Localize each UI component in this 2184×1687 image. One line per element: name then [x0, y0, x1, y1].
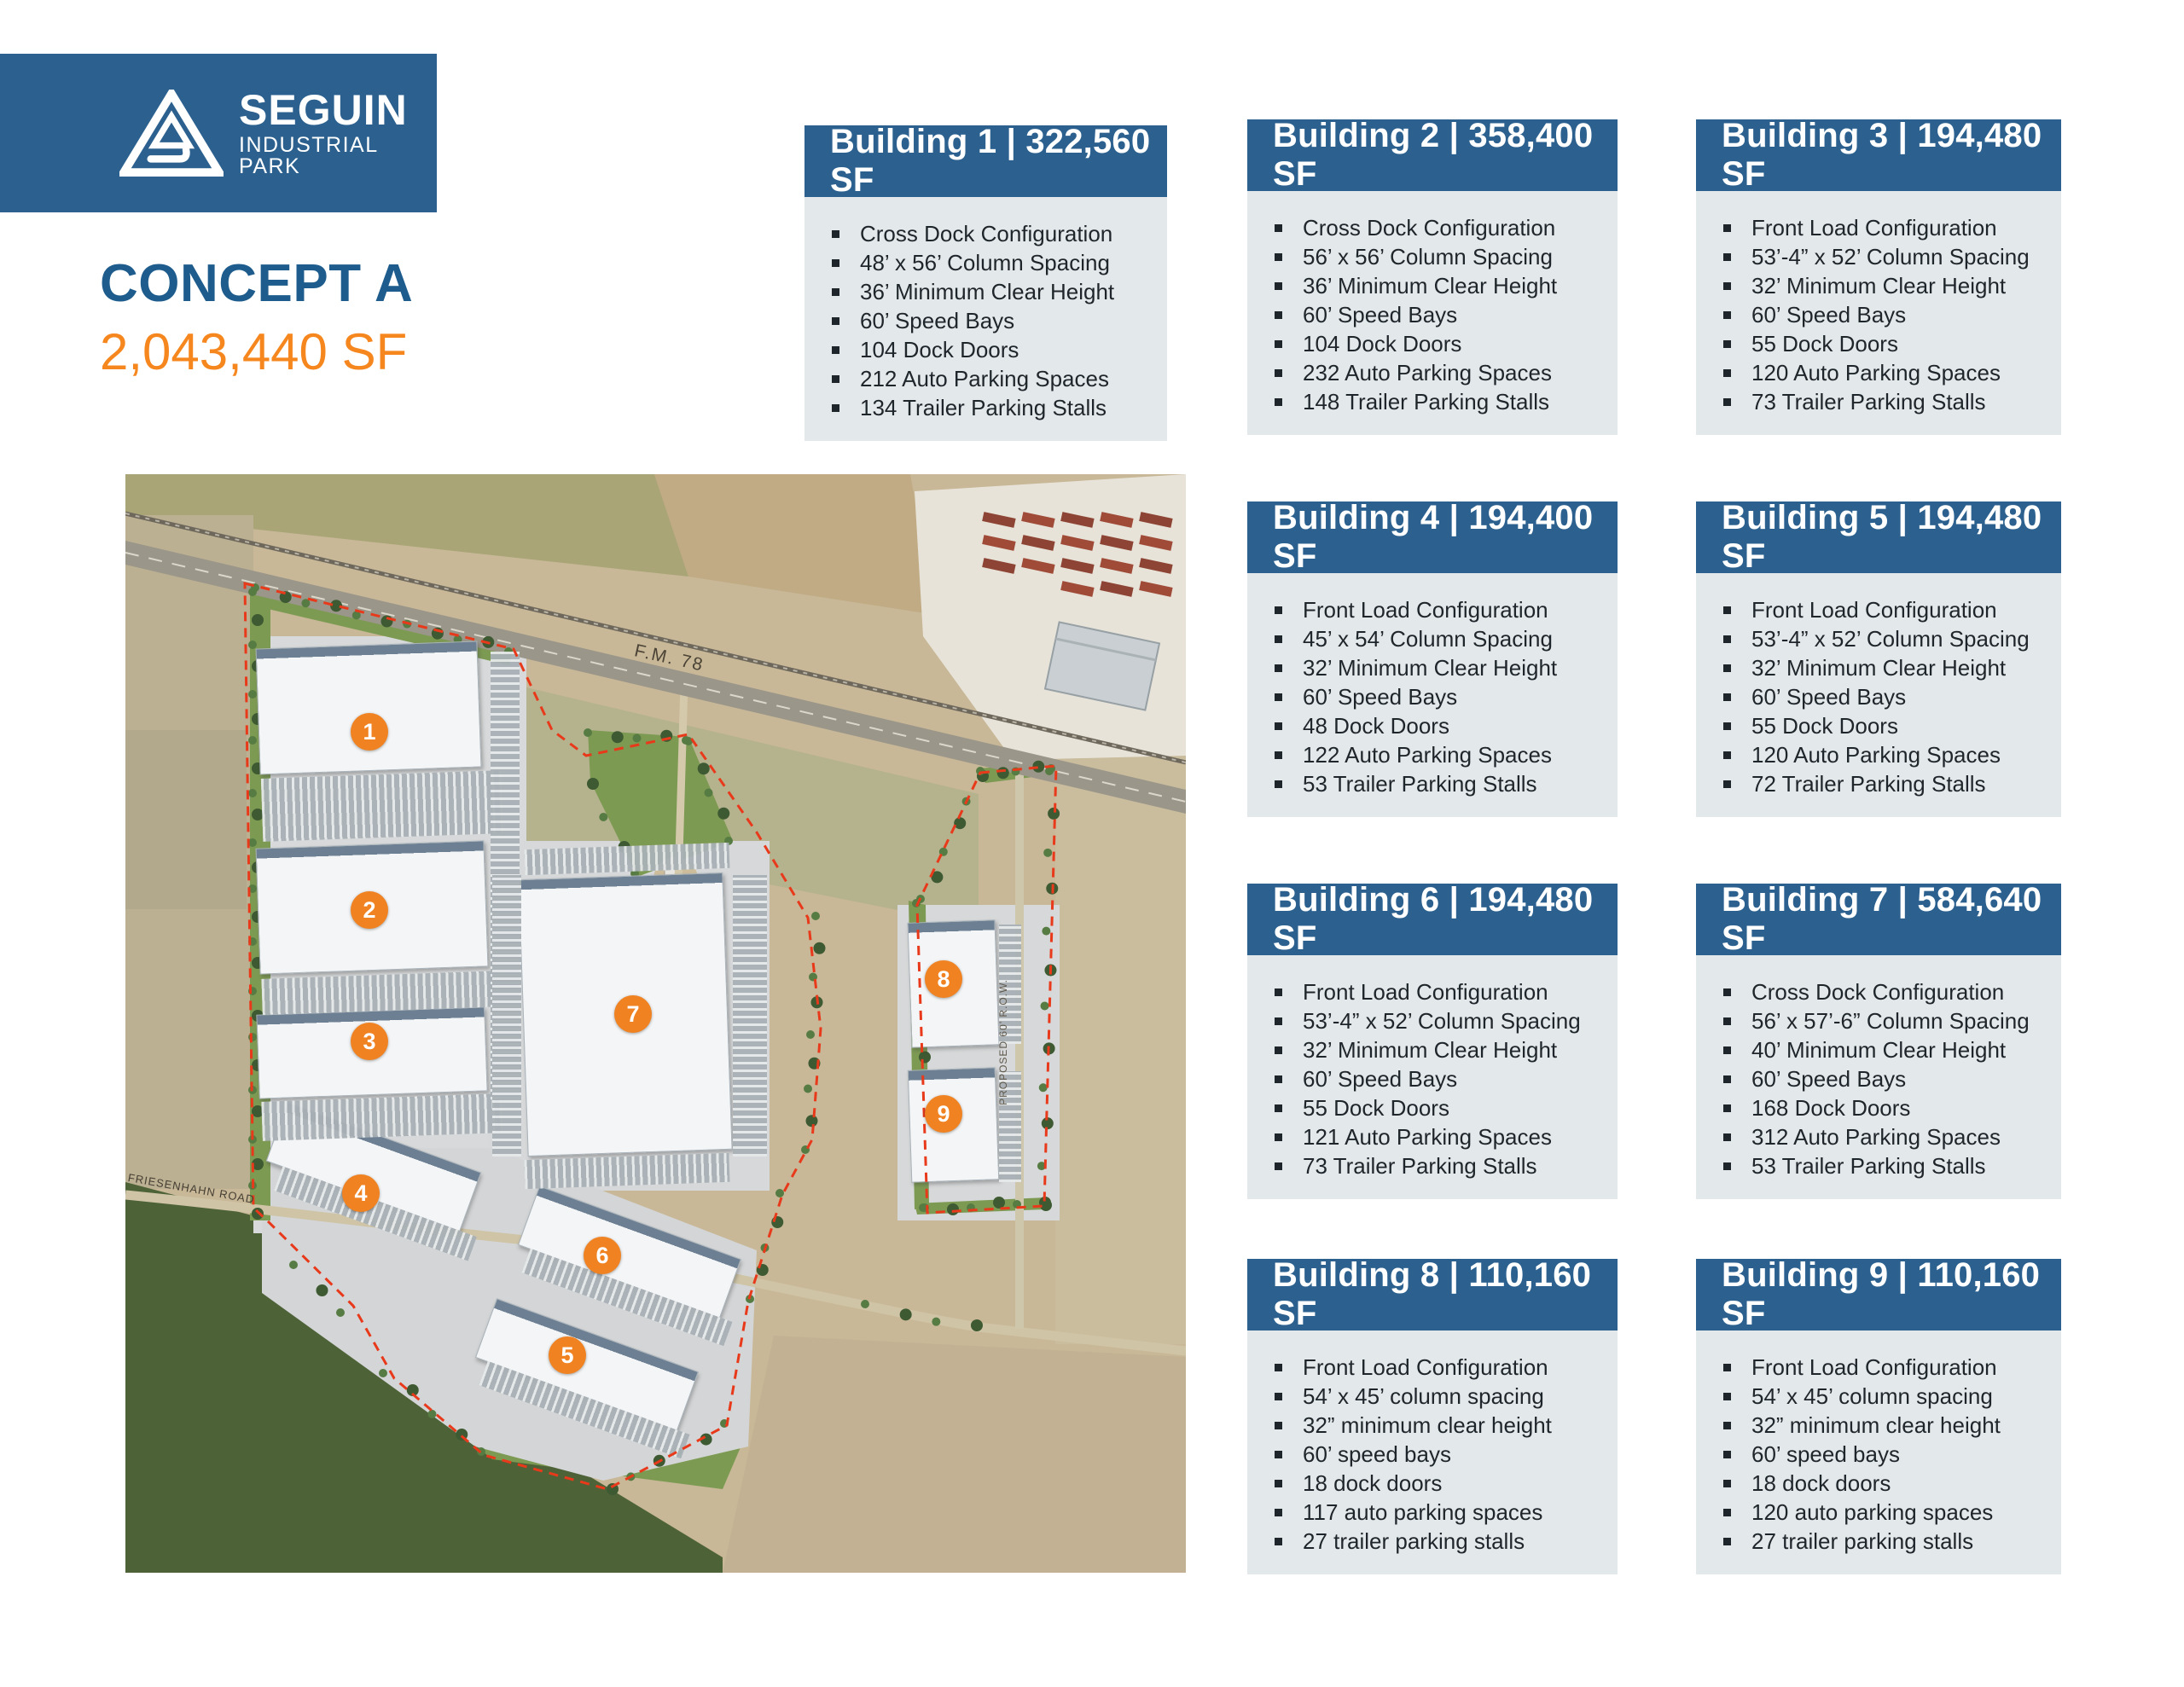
spec-text: Front Load Configuration — [1303, 977, 1548, 1006]
spec-bullet-item: 60’ Speed Bays — [1722, 1064, 2047, 1093]
spec-text: 60’ Speed Bays — [860, 306, 1014, 335]
spec-bullet-item: 55 Dock Doors — [1722, 329, 2047, 358]
site-plan-map: F.M. 78 FRIESENHAHN ROAD PROPOSED 60’ R.… — [125, 474, 1186, 1573]
card-header: Building 9 | 110,160 SF — [1696, 1259, 2061, 1330]
spec-text: 53 Trailer Parking Stalls — [1751, 1151, 1986, 1180]
page: SEGUIN INDUSTRIAL PARK CONCEPT A 2,043,4… — [0, 0, 2184, 1687]
spec-bullet-item: 56’ x 56’ Column Spacing — [1273, 242, 1604, 271]
spec-text: 122 Auto Parking Spaces — [1303, 740, 1552, 769]
spec-text: Cross Dock Configuration — [1303, 213, 1555, 242]
card-header: Building 7 | 584,640 SF — [1696, 884, 2061, 955]
spec-text: Cross Dock Configuration — [1751, 977, 2004, 1006]
bullet-square-icon — [1723, 1509, 1731, 1516]
spec-bullet-item: 32” minimum clear height — [1273, 1411, 1604, 1440]
bullet-square-icon — [1275, 664, 1282, 672]
bullet-square-icon — [1723, 693, 1731, 701]
bullet-square-icon — [1275, 988, 1282, 996]
spec-text: 212 Auto Parking Spaces — [860, 364, 1109, 393]
spec-bullet-item: Cross Dock Configuration — [830, 219, 1153, 248]
spec-bullet-item: 45’ x 54’ Column Spacing — [1273, 624, 1604, 653]
spec-text: 48 Dock Doors — [1303, 711, 1449, 740]
card-header: Building 4 | 194,400 SF — [1247, 501, 1618, 573]
bullet-square-icon — [1723, 253, 1731, 261]
spec-text: 60’ Speed Bays — [1751, 682, 1906, 711]
bullet-square-icon — [1723, 1451, 1731, 1458]
building-marker-5: 5 — [549, 1336, 586, 1374]
spec-text: 148 Trailer Parking Stalls — [1303, 387, 1549, 416]
building-marker-1: 1 — [351, 713, 388, 751]
spec-text: Front Load Configuration — [1303, 1353, 1548, 1382]
building-card-7: Building 7 | 584,640 SF Cross Dock Confi… — [1696, 884, 2061, 1199]
spec-text: Cross Dock Configuration — [860, 219, 1112, 248]
spec-bullet-item: 48 Dock Doors — [1273, 711, 1604, 740]
spec-bullet-item: Front Load Configuration — [1273, 595, 1604, 624]
card-body: Front Load Configuration45’ x 54’ Column… — [1247, 573, 1618, 817]
card-body: Front Load Configuration54’ x 45’ column… — [1696, 1330, 2061, 1574]
spec-bullet-item: 104 Dock Doors — [1273, 329, 1604, 358]
spec-bullet-item: 55 Dock Doors — [1722, 711, 2047, 740]
spec-bullet-item: 73 Trailer Parking Stalls — [1722, 387, 2047, 416]
bullet-square-icon — [1723, 311, 1731, 319]
bullet-square-icon — [1723, 1422, 1731, 1429]
triangle-logo-icon — [119, 90, 224, 177]
spec-text: 48’ x 56’ Column Spacing — [860, 248, 1110, 277]
building-card-3: Building 3 | 194,480 SF Front Load Confi… — [1696, 119, 2061, 435]
bullet-square-icon — [1723, 988, 1731, 996]
bullet-square-icon — [1275, 751, 1282, 759]
card-header: Building 8 | 110,160 SF — [1247, 1259, 1618, 1330]
logo-name: SEGUIN — [239, 89, 437, 131]
spec-text: 27 trailer parking stalls — [1303, 1527, 1525, 1556]
building-marker-9: 9 — [925, 1095, 962, 1133]
spec-bullet-item: 60’ Speed Bays — [1273, 300, 1604, 329]
spec-text: 45’ x 54’ Column Spacing — [1303, 624, 1553, 653]
spec-bullet-item: 148 Trailer Parking Stalls — [1273, 387, 1604, 416]
card-body: Front Load Configuration53’-4” x 52’ Col… — [1247, 955, 1618, 1199]
bullet-square-icon — [1723, 398, 1731, 406]
card-title: Building 5 | 194,480 SF — [1722, 499, 2061, 576]
spec-list: Cross Dock Configuration56’ x 57’-6” Col… — [1722, 977, 2047, 1180]
bullet-square-icon — [1275, 369, 1282, 377]
bullet-square-icon — [832, 288, 839, 296]
card-body: Cross Dock Configuration56’ x 56’ Column… — [1247, 191, 1618, 435]
spec-bullet-item: 60’ Speed Bays — [1273, 682, 1604, 711]
building-card-1: Building 1 | 322,560 SF Cross Dock Confi… — [804, 125, 1167, 441]
spec-text: 60’ Speed Bays — [1303, 682, 1457, 711]
spec-text: 117 auto parking spaces — [1303, 1498, 1542, 1527]
bullet-square-icon — [1723, 635, 1731, 643]
building-card-2: Building 2 | 358,400 SF Cross Dock Confi… — [1247, 119, 1618, 435]
parking-area — [261, 770, 503, 842]
spec-text: 232 Auto Parking Spaces — [1303, 358, 1552, 387]
bullet-square-icon — [1723, 224, 1731, 232]
building-card-8: Building 8 | 110,160 SF Front Load Confi… — [1247, 1259, 1618, 1574]
spec-bullet-item: 53 Trailer Parking Stalls — [1722, 1151, 2047, 1180]
spec-bullet-item: 232 Auto Parking Spaces — [1273, 358, 1604, 387]
bullet-square-icon — [1723, 1133, 1731, 1141]
road-label-proposed-row: PROPOSED 60’ R.O.W. — [997, 979, 1009, 1105]
spec-text: 121 Auto Parking Spaces — [1303, 1122, 1552, 1151]
card-title: Building 1 | 322,560 SF — [830, 123, 1167, 200]
bullet-square-icon — [1275, 1046, 1282, 1054]
bullet-square-icon — [1275, 693, 1282, 701]
card-body: Front Load Configuration53’-4” x 52’ Col… — [1696, 191, 2061, 435]
spec-bullet-item: 40’ Minimum Clear Height — [1722, 1035, 2047, 1064]
spec-bullet-item: 32” minimum clear height — [1722, 1411, 2047, 1440]
bullet-square-icon — [1275, 1104, 1282, 1112]
spec-text: 40’ Minimum Clear Height — [1751, 1035, 2006, 1064]
spec-bullet-item: 54’ x 45’ column spacing — [1273, 1382, 1604, 1411]
spec-bullet-item: 117 auto parking spaces — [1273, 1498, 1604, 1527]
bullet-square-icon — [1275, 340, 1282, 348]
parking-area — [492, 875, 521, 1157]
card-header: Building 5 | 194,480 SF — [1696, 501, 2061, 573]
bullet-square-icon — [1723, 1046, 1731, 1054]
spec-bullet-item: 53’-4” x 52’ Column Spacing — [1273, 1006, 1604, 1035]
spec-text: 56’ x 56’ Column Spacing — [1303, 242, 1553, 271]
parking-area — [261, 1093, 502, 1141]
bullet-square-icon — [1275, 1393, 1282, 1400]
card-title: Building 9 | 110,160 SF — [1722, 1256, 2061, 1333]
spec-text: 54’ x 45’ column spacing — [1751, 1382, 1993, 1411]
logo: SEGUIN INDUSTRIAL PARK — [119, 89, 437, 177]
spec-text: 60’ Speed Bays — [1751, 300, 1906, 329]
spec-list: Front Load Configuration54’ x 45’ column… — [1722, 1353, 2047, 1556]
spec-text: 32’ Minimum Clear Height — [1751, 653, 2006, 682]
bullet-square-icon — [1275, 311, 1282, 319]
spec-bullet-item: 122 Auto Parking Spaces — [1273, 740, 1604, 769]
spec-bullet-item: 60’ Speed Bays — [1722, 682, 2047, 711]
spec-bullet-item: Front Load Configuration — [1722, 595, 2047, 624]
bullet-square-icon — [832, 346, 839, 354]
bullet-square-icon — [1275, 253, 1282, 261]
bullet-square-icon — [1723, 369, 1731, 377]
spec-bullet-item: 121 Auto Parking Spaces — [1273, 1122, 1604, 1151]
spec-text: 18 dock doors — [1751, 1469, 1891, 1498]
header-banner: SEGUIN INDUSTRIAL PARK — [0, 54, 437, 212]
building-marker-8: 8 — [925, 960, 962, 998]
bullet-square-icon — [1275, 1509, 1282, 1516]
bullet-square-icon — [1723, 664, 1731, 672]
spec-text: 60’ speed bays — [1303, 1440, 1451, 1469]
spec-bullet-item: 60’ Speed Bays — [1273, 1064, 1604, 1093]
bullet-square-icon — [1275, 1017, 1282, 1025]
spec-bullet-item: 18 dock doors — [1273, 1469, 1604, 1498]
bullet-square-icon — [1723, 722, 1731, 730]
bullet-square-icon — [1275, 1451, 1282, 1458]
bullet-square-icon — [1275, 780, 1282, 788]
building-card-9: Building 9 | 110,160 SF Front Load Confi… — [1696, 1259, 2061, 1574]
building-marker-4: 4 — [342, 1174, 380, 1212]
spec-bullet-item: 72 Trailer Parking Stalls — [1722, 769, 2047, 798]
spec-bullet-item: 60’ Speed Bays — [830, 306, 1153, 335]
card-title: Building 6 | 194,480 SF — [1273, 881, 1618, 958]
bullet-square-icon — [832, 230, 839, 238]
spec-bullet-item: 120 auto parking spaces — [1722, 1498, 2047, 1527]
spec-text: 104 Dock Doors — [1303, 329, 1461, 358]
spec-bullet-item: 120 Auto Parking Spaces — [1722, 740, 2047, 769]
parking-area — [733, 875, 767, 1157]
spec-list: Front Load Configuration54’ x 45’ column… — [1273, 1353, 1604, 1556]
bullet-square-icon — [1275, 398, 1282, 406]
spec-text: 120 Auto Parking Spaces — [1751, 740, 2001, 769]
spec-list: Cross Dock Configuration56’ x 56’ Column… — [1273, 213, 1604, 416]
spec-bullet-item: 60’ Speed Bays — [1722, 300, 2047, 329]
spec-bullet-item: 48’ x 56’ Column Spacing — [830, 248, 1153, 277]
spec-text: 55 Dock Doors — [1751, 329, 1898, 358]
spec-text: 27 trailer parking stalls — [1751, 1527, 1973, 1556]
spec-text: 312 Auto Parking Spaces — [1751, 1122, 2001, 1151]
concept-title-block: CONCEPT A 2,043,440 SF — [100, 253, 413, 381]
card-title: Building 4 | 194,400 SF — [1273, 499, 1618, 576]
spec-text: 53 Trailer Parking Stalls — [1303, 769, 1537, 798]
spec-bullet-item: 60’ speed bays — [1273, 1440, 1604, 1469]
card-body: Front Load Configuration54’ x 45’ column… — [1247, 1330, 1618, 1574]
bullet-square-icon — [1723, 1104, 1731, 1112]
spec-text: 54’ x 45’ column spacing — [1303, 1382, 1544, 1411]
spec-bullet-item: 55 Dock Doors — [1273, 1093, 1604, 1122]
spec-bullet-item: 32’ Minimum Clear Height — [1722, 653, 2047, 682]
card-title: Building 7 | 584,640 SF — [1722, 881, 2061, 958]
bullet-square-icon — [1275, 1162, 1282, 1170]
spec-bullet-item: 53 Trailer Parking Stalls — [1273, 769, 1604, 798]
bullet-square-icon — [1723, 1162, 1731, 1170]
spec-bullet-item: 53’-4” x 52’ Column Spacing — [1722, 624, 2047, 653]
card-body: Front Load Configuration53’-4” x 52’ Col… — [1696, 573, 2061, 817]
spec-text: 120 Auto Parking Spaces — [1751, 358, 2001, 387]
spec-bullet-item: 312 Auto Parking Spaces — [1722, 1122, 2047, 1151]
bullet-square-icon — [1275, 635, 1282, 643]
spec-text: Front Load Configuration — [1303, 595, 1548, 624]
spec-bullet-item: 56’ x 57’-6” Column Spacing — [1722, 1006, 2047, 1035]
spec-bullet-item: Cross Dock Configuration — [1722, 977, 2047, 1006]
card-body: Cross Dock Configuration56’ x 57’-6” Col… — [1696, 955, 2061, 1199]
logo-text: SEGUIN INDUSTRIAL PARK — [239, 89, 437, 177]
card-header: Building 6 | 194,480 SF — [1247, 884, 1618, 955]
spec-text: 36’ Minimum Clear Height — [860, 277, 1114, 306]
spec-text: 32” minimum clear height — [1303, 1411, 1552, 1440]
spec-bullet-item: 104 Dock Doors — [830, 335, 1153, 364]
building-marker-6: 6 — [584, 1237, 621, 1274]
spec-text: 56’ x 57’-6” Column Spacing — [1751, 1006, 2030, 1035]
building-marker-7: 7 — [614, 995, 652, 1033]
card-header: Building 2 | 358,400 SF — [1247, 119, 1618, 191]
bullet-square-icon — [1275, 1133, 1282, 1141]
spec-bullet-item: Cross Dock Configuration — [1273, 213, 1604, 242]
bullet-square-icon — [1275, 1422, 1282, 1429]
spec-text: 104 Dock Doors — [860, 335, 1019, 364]
bullet-square-icon — [1723, 1538, 1731, 1545]
card-body: Cross Dock Configuration48’ x 56’ Column… — [804, 197, 1167, 441]
bullet-square-icon — [1275, 1364, 1282, 1371]
spec-bullet-item: 73 Trailer Parking Stalls — [1273, 1151, 1604, 1180]
spec-bullet-item: 134 Trailer Parking Stalls — [830, 393, 1153, 422]
spec-text: 32’ Minimum Clear Height — [1751, 271, 2006, 300]
logo-subtitle: INDUSTRIAL PARK — [239, 135, 437, 177]
spec-bullet-item: 120 Auto Parking Spaces — [1722, 358, 2047, 387]
bullet-square-icon — [1723, 1480, 1731, 1487]
bullet-square-icon — [1723, 606, 1731, 614]
bullet-square-icon — [1723, 1393, 1731, 1400]
spec-text: Front Load Configuration — [1751, 213, 1997, 242]
spec-text: 120 auto parking spaces — [1751, 1498, 1993, 1527]
spec-bullet-item: 60’ speed bays — [1722, 1440, 2047, 1469]
building-marker-2: 2 — [351, 891, 388, 929]
building-card-4: Building 4 | 194,400 SF Front Load Confi… — [1247, 501, 1618, 817]
bullet-square-icon — [1723, 751, 1731, 759]
bullet-square-icon — [1723, 1017, 1731, 1025]
card-title: Building 2 | 358,400 SF — [1273, 117, 1618, 194]
spec-text: Front Load Configuration — [1751, 595, 1997, 624]
spec-text: 53’-4” x 52’ Column Spacing — [1751, 624, 2030, 653]
spec-bullet-item: 212 Auto Parking Spaces — [830, 364, 1153, 393]
spec-text: 72 Trailer Parking Stalls — [1751, 769, 1986, 798]
bullet-square-icon — [832, 259, 839, 267]
spec-text: 53’-4” x 52’ Column Spacing — [1751, 242, 2030, 271]
spec-text: 55 Dock Doors — [1303, 1093, 1449, 1122]
bullet-square-icon — [1275, 1538, 1282, 1545]
spec-bullet-item: Front Load Configuration — [1273, 1353, 1604, 1382]
spec-bullet-item: 32’ Minimum Clear Height — [1722, 271, 2047, 300]
spec-text: 60’ speed bays — [1751, 1440, 1900, 1469]
card-title: Building 8 | 110,160 SF — [1273, 1256, 1618, 1333]
spec-bullet-item: 32’ Minimum Clear Height — [1273, 653, 1604, 682]
spec-list: Front Load Configuration53’-4” x 52’ Col… — [1273, 977, 1604, 1180]
spec-bullet-item: 54’ x 45’ column spacing — [1722, 1382, 2047, 1411]
spec-list: Front Load Configuration45’ x 54’ Column… — [1273, 595, 1604, 798]
spec-text: 60’ Speed Bays — [1303, 1064, 1457, 1093]
spec-bullet-item: 18 dock doors — [1722, 1469, 2047, 1498]
spec-text: Front Load Configuration — [1751, 1353, 1997, 1382]
spec-bullet-item: Front Load Configuration — [1273, 977, 1604, 1006]
bullet-square-icon — [1723, 1075, 1731, 1083]
spec-text: 36’ Minimum Clear Height — [1303, 271, 1557, 300]
spec-bullet-item: Front Load Configuration — [1722, 1353, 2047, 1382]
bullet-square-icon — [1723, 340, 1731, 348]
page-title: CONCEPT A — [100, 253, 413, 314]
spec-text: 18 dock doors — [1303, 1469, 1442, 1498]
spec-list: Cross Dock Configuration48’ x 56’ Column… — [830, 219, 1153, 422]
spec-bullet-item: 168 Dock Doors — [1722, 1093, 2047, 1122]
building-marker-3: 3 — [351, 1023, 388, 1060]
bullet-square-icon — [1275, 722, 1282, 730]
total-square-footage: 2,043,440 SF — [100, 322, 413, 381]
bullet-square-icon — [1275, 282, 1282, 290]
bullet-square-icon — [832, 404, 839, 412]
card-title: Building 3 | 194,480 SF — [1722, 117, 2061, 194]
spec-bullet-item: Front Load Configuration — [1722, 213, 2047, 242]
spec-bullet-item: 53’-4” x 52’ Column Spacing — [1722, 242, 2047, 271]
bullet-square-icon — [832, 375, 839, 383]
card-header: Building 1 | 322,560 SF — [804, 125, 1167, 197]
spec-text: 32” minimum clear height — [1751, 1411, 2001, 1440]
building-card-6: Building 6 | 194,480 SF Front Load Confi… — [1247, 884, 1618, 1199]
bullet-square-icon — [1275, 1075, 1282, 1083]
spec-text: 60’ Speed Bays — [1303, 300, 1457, 329]
spec-bullet-item: 27 trailer parking stalls — [1273, 1527, 1604, 1556]
bullet-square-icon — [1723, 780, 1731, 788]
spec-bullet-item: 36’ Minimum Clear Height — [1273, 271, 1604, 300]
spec-bullet-item: 36’ Minimum Clear Height — [830, 277, 1153, 306]
bullet-square-icon — [1723, 1364, 1731, 1371]
spec-list: Front Load Configuration53’-4” x 52’ Col… — [1722, 595, 2047, 798]
spec-text: 53’-4” x 52’ Column Spacing — [1303, 1006, 1581, 1035]
spec-text: 73 Trailer Parking Stalls — [1303, 1151, 1537, 1180]
spec-bullet-item: 32’ Minimum Clear Height — [1273, 1035, 1604, 1064]
spec-text: 168 Dock Doors — [1751, 1093, 1910, 1122]
bullet-square-icon — [1723, 282, 1731, 290]
bullet-square-icon — [1275, 606, 1282, 614]
spec-text: 32’ Minimum Clear Height — [1303, 1035, 1557, 1064]
spec-text: 134 Trailer Parking Stalls — [860, 393, 1107, 422]
bullet-square-icon — [1275, 224, 1282, 232]
bullet-square-icon — [832, 317, 839, 325]
card-header: Building 3 | 194,480 SF — [1696, 119, 2061, 191]
spec-bullet-item: 27 trailer parking stalls — [1722, 1527, 2047, 1556]
spec-text: 32’ Minimum Clear Height — [1303, 653, 1557, 682]
spec-text: 55 Dock Doors — [1751, 711, 1898, 740]
spec-text: 73 Trailer Parking Stalls — [1751, 387, 1986, 416]
spec-list: Front Load Configuration53’-4” x 52’ Col… — [1722, 213, 2047, 416]
spec-text: 60’ Speed Bays — [1751, 1064, 1906, 1093]
building-card-5: Building 5 | 194,480 SF Front Load Confi… — [1696, 501, 2061, 817]
bullet-square-icon — [1275, 1480, 1282, 1487]
building-footprint-1 — [255, 641, 481, 775]
